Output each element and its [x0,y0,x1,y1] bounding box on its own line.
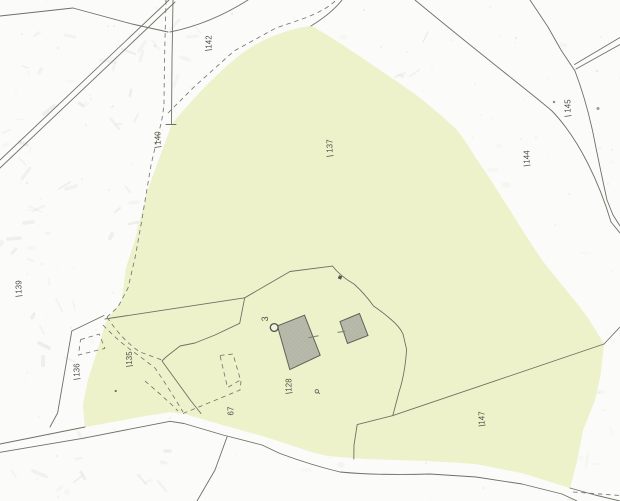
svg-text:144: 144 [523,150,532,164]
svg-text:128: 128 [285,378,294,392]
svg-text:3: 3 [260,316,270,321]
svg-text:67: 67 [227,406,236,415]
svg-text:140: 140 [154,131,163,145]
svg-text:135: 135 [125,351,134,365]
svg-text:137: 137 [326,139,335,153]
svg-text:139: 139 [15,280,24,294]
svg-text:142: 142 [205,35,214,49]
svg-text:136: 136 [73,363,82,377]
svg-text:145: 145 [564,99,573,113]
svg-text:147: 147 [478,411,487,425]
